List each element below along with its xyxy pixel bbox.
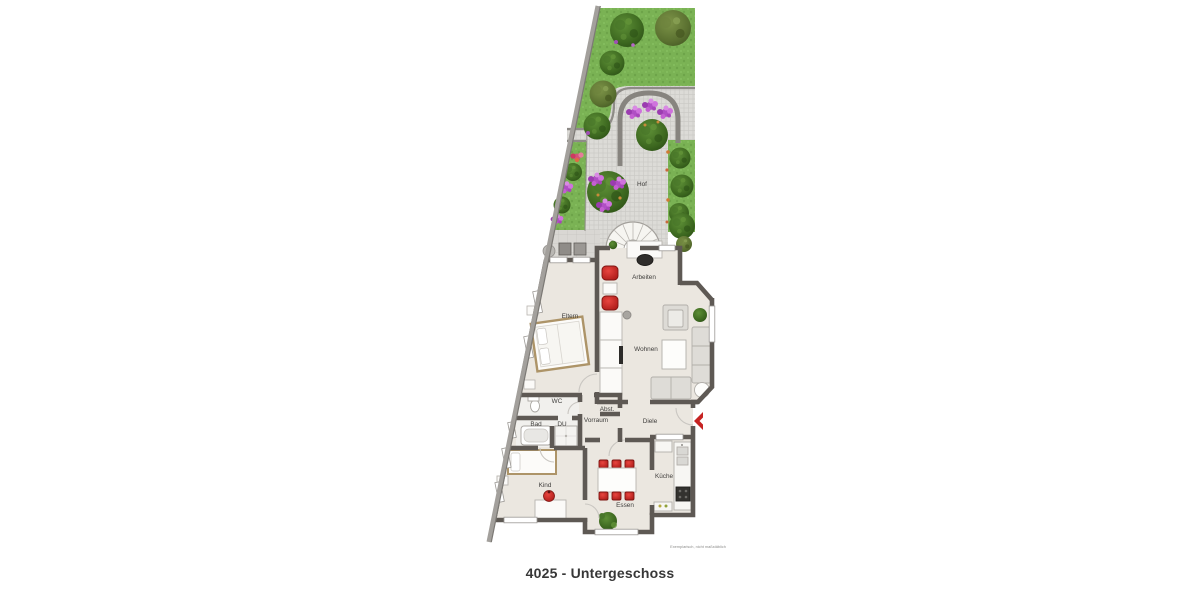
kitchen-sink [677,447,688,455]
room-label-diele: Diele [643,418,658,425]
stool [623,311,631,319]
room-label-hof: Hof [637,181,647,188]
window [709,306,715,342]
room-label-bad: Bad [530,421,542,428]
disclaimer-text: Exemplarisch, nicht maßstäblich [670,544,726,549]
window [504,517,537,523]
kitchen-unit [654,502,672,511]
floor-plan-page: Hof [0,0,1200,600]
plan-title: 4025 - Untergeschoss [0,565,1200,581]
dining-chair [625,492,634,500]
room-label-arbeiten: Arbeiten [632,274,656,281]
dining-table [598,468,636,492]
plant [609,241,617,249]
dining-chair [599,492,608,500]
grill [574,243,586,255]
stove [676,487,690,501]
room-label-abst: Abst. [600,406,615,413]
room-label-vorraum: Vorraum [584,417,608,424]
coffee-table [662,340,686,369]
plant [693,308,707,322]
room-label-kueche: Küche [655,473,674,480]
window [656,434,683,440]
room-label-eltern: Eltern [562,313,579,320]
tv [619,346,623,364]
room-label-wc: WC [552,398,563,405]
side-table [603,283,617,294]
window [595,529,638,535]
desk-chair [637,255,653,266]
flower-bed-courtyard [587,171,629,213]
kitchen-unit [655,441,672,452]
dining-chair [625,460,634,468]
floor-plan: Hof [0,0,1200,600]
desk [535,500,566,520]
room-label-essen: Essen [616,502,634,509]
window [573,257,590,263]
nightstand [524,380,535,389]
room-label-wohnen: Wohnen [634,346,658,353]
dining-chair [599,460,608,468]
entrance-chevron-icon [694,412,703,430]
pillow [539,348,550,365]
red-chair [602,296,618,310]
dining-chair [612,460,621,468]
dining-chair [612,492,621,500]
window [550,257,567,263]
pillow [537,328,548,345]
red-chair [602,266,618,280]
window [659,245,675,251]
pillow [511,453,520,471]
grill [559,243,571,255]
room-label-du: DU [557,421,567,428]
sofa [692,327,711,383]
toilet [531,400,540,412]
room-label-kind: Kind [539,482,552,489]
